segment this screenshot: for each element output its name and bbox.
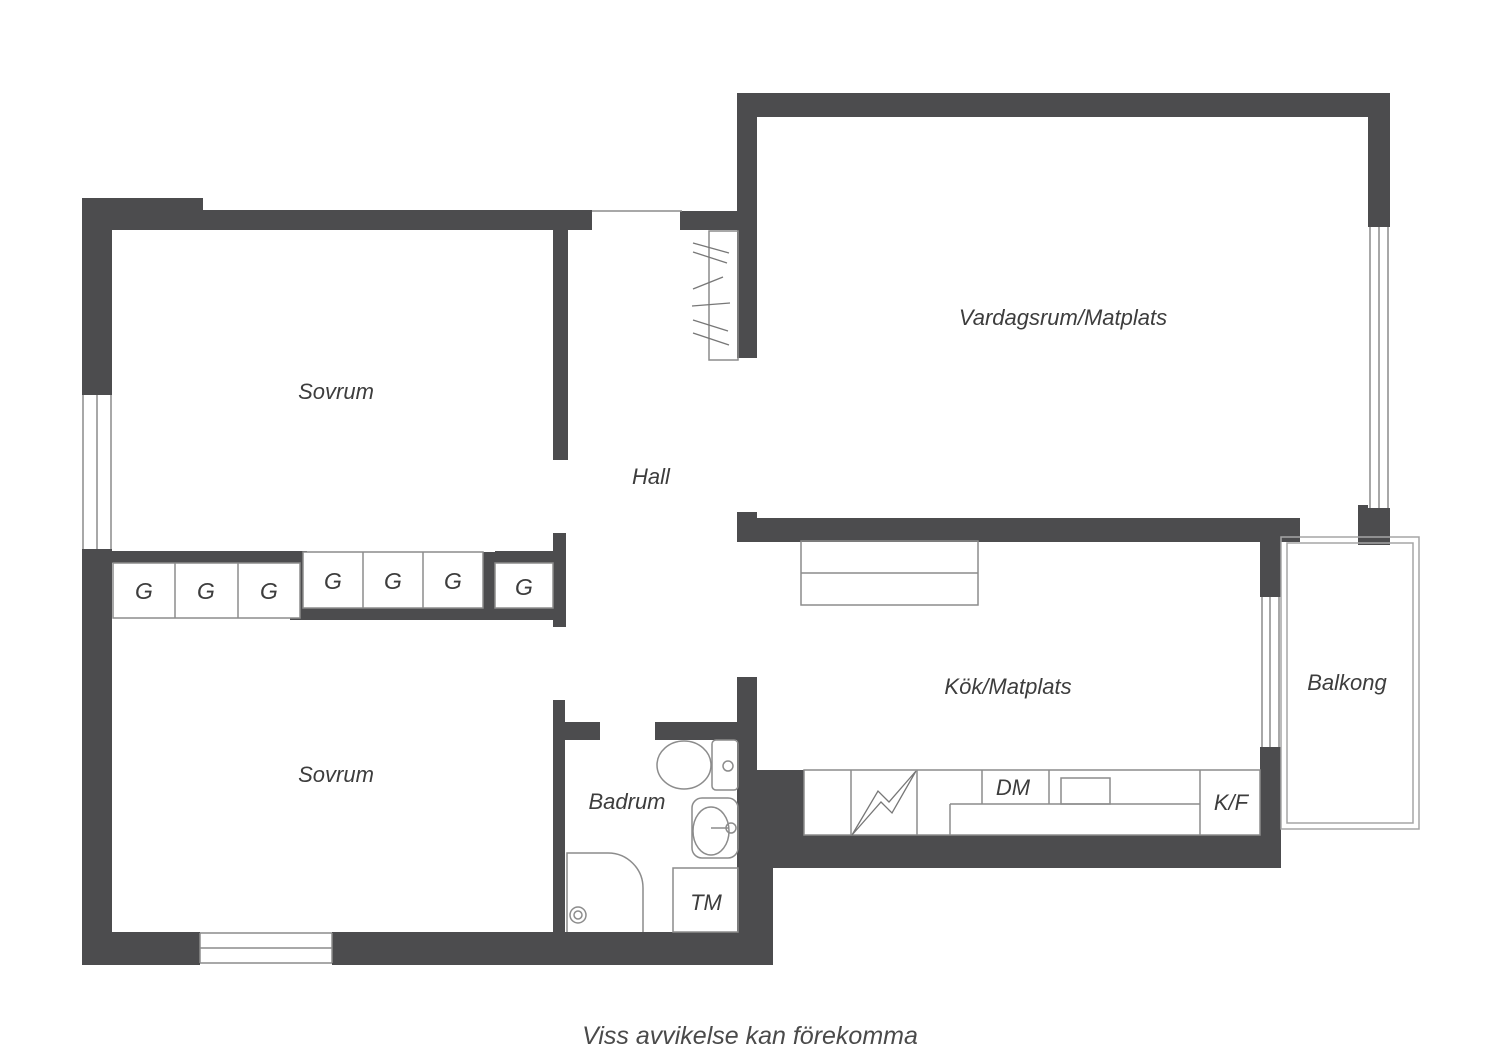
entrance-door [592,211,738,360]
wall-segment [553,230,568,460]
dishwasher-label: DM [996,775,1031,800]
room-label-kok: Kök/Matplats [944,674,1071,699]
wall-segment [757,770,804,835]
closet-label: G [135,578,153,604]
wall-segment [757,835,1281,868]
closet-label: G [324,568,342,594]
room-label-badrum: Badrum [588,789,665,814]
floor-plan-svg: G G G G G G G DM K/F [0,0,1500,1060]
room-label-sovrum1: Sovrum [298,379,374,404]
wall-segment [757,518,1300,542]
wall-segment [82,551,307,563]
wall-segment [82,198,112,395]
wall-segment [82,549,112,965]
window-bedroom2-bottom [200,932,332,965]
wall-segment [553,700,565,932]
wall-segment [655,722,740,740]
stove-lightning-icon [852,771,916,835]
closet-label: G [444,568,462,594]
wall-segment [680,211,737,230]
wall-segment [332,932,773,965]
wall-segment [737,867,773,932]
kitchen-sink [1061,778,1110,804]
wall-segment [737,93,757,358]
room-label-balkong: Balkong [1307,670,1387,695]
washbasin-icon [692,798,738,858]
kitchen-sideboard [801,541,978,605]
wall-segment [483,552,495,608]
wall-segment [203,210,592,230]
room-label-hall: Hall [632,464,671,489]
window-livingroom-right [1368,227,1390,508]
room-label-sovrum2: Sovrum [298,762,374,787]
wall-segment [82,932,200,965]
floor-plan: G G G G G G G DM K/F [0,0,1500,1060]
wall-segment [495,551,563,563]
wall-segment [1358,505,1390,545]
wall-segment [290,608,563,620]
wall-segment [1368,93,1390,227]
wall-segment [737,93,1390,117]
washing-machine-label: TM [690,890,722,915]
bathroom-fixtures: TM [567,740,738,932]
balcony-door-window [1260,597,1281,747]
closet-label: G [515,574,533,600]
wall-segment [565,722,600,740]
entrance-door-leaf [709,231,738,360]
wall-segment [1260,542,1281,597]
kitchen-counter [804,770,1260,835]
entrance-door-hatch-lines [692,243,730,345]
wall-segment [737,512,757,542]
window-bedroom1-left [82,395,112,549]
wall-segment [553,533,566,627]
shower-icon [567,853,643,932]
toilet-icon [657,740,738,790]
room-label-vardagsrum: Vardagsrum/Matplats [959,305,1167,330]
closet-label: G [197,578,215,604]
shower-drain-icon [570,907,586,923]
closet-label: G [384,568,402,594]
closet-label: G [260,578,278,604]
wall-segment [737,677,757,867]
walls [82,93,1390,965]
disclaimer-text: Viss avvikelse kan förekomma [582,1022,918,1050]
fridge-freezer-label: K/F [1214,790,1250,815]
appliance-labels: DM K/F [996,775,1250,815]
